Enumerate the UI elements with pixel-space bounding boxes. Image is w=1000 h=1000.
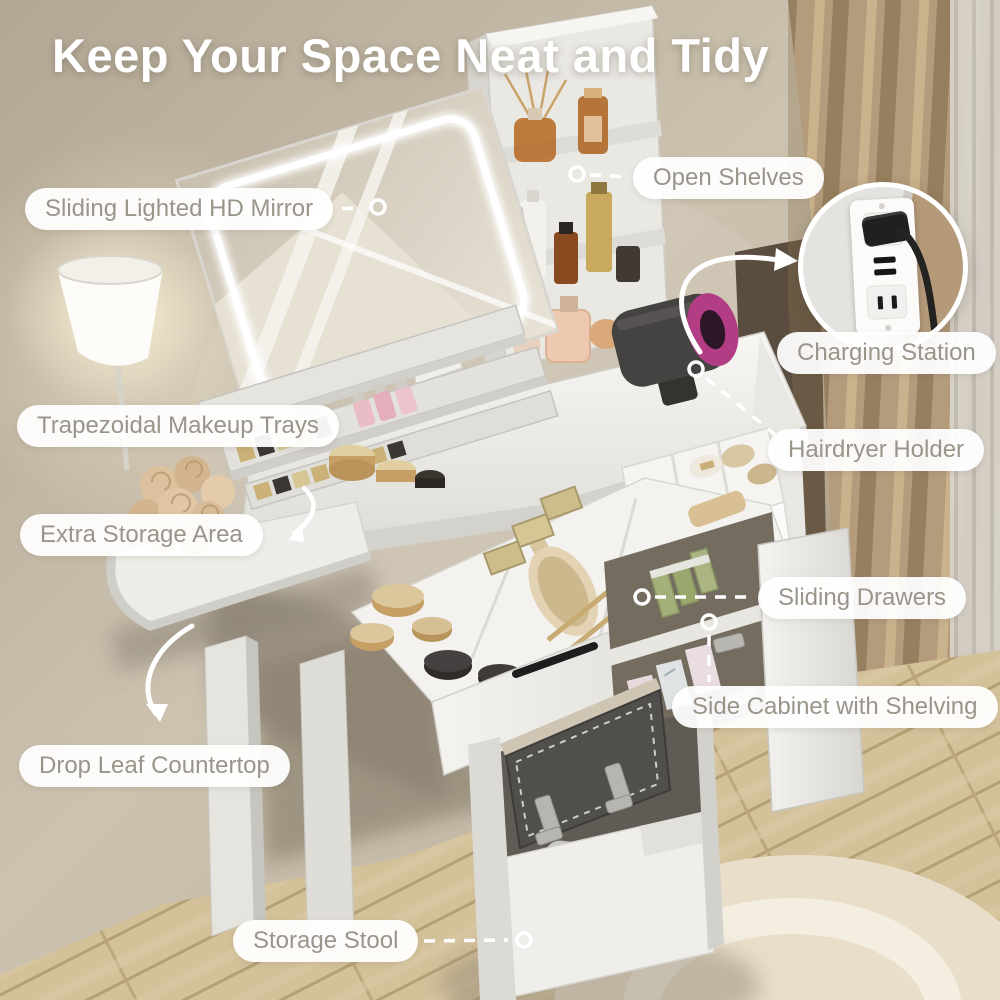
callout-sliding-drawers: Sliding Drawers [758,577,966,619]
callout-drop-leaf-countertop: Drop Leaf Countertop [19,745,290,787]
callout-charging-station: Charging Station [777,332,996,374]
callout-trapezoidal-makeup-trays: Trapezoidal Makeup Trays [17,405,339,447]
charging-station-inset [798,182,968,352]
page-title: Keep Your Space Neat and Tidy [52,28,769,83]
product-infographic: Keep Your Space Neat and Tidy Sliding Li… [0,0,1000,1000]
callout-storage-stool: Storage Stool [233,920,418,962]
callout-sliding-lighted-hd-mirror: Sliding Lighted HD Mirror [25,188,333,230]
plug-cable [803,187,963,347]
sheer-curtain [950,0,1000,756]
cabinet-door [758,528,864,812]
callout-open-shelves: Open Shelves [633,157,824,199]
callout-side-cabinet: Side Cabinet with Shelving [672,686,998,728]
callout-hairdryer-holder: Hairdryer Holder [768,429,984,471]
callout-extra-storage-area: Extra Storage Area [20,514,263,556]
scene-illustration [0,0,1000,1000]
